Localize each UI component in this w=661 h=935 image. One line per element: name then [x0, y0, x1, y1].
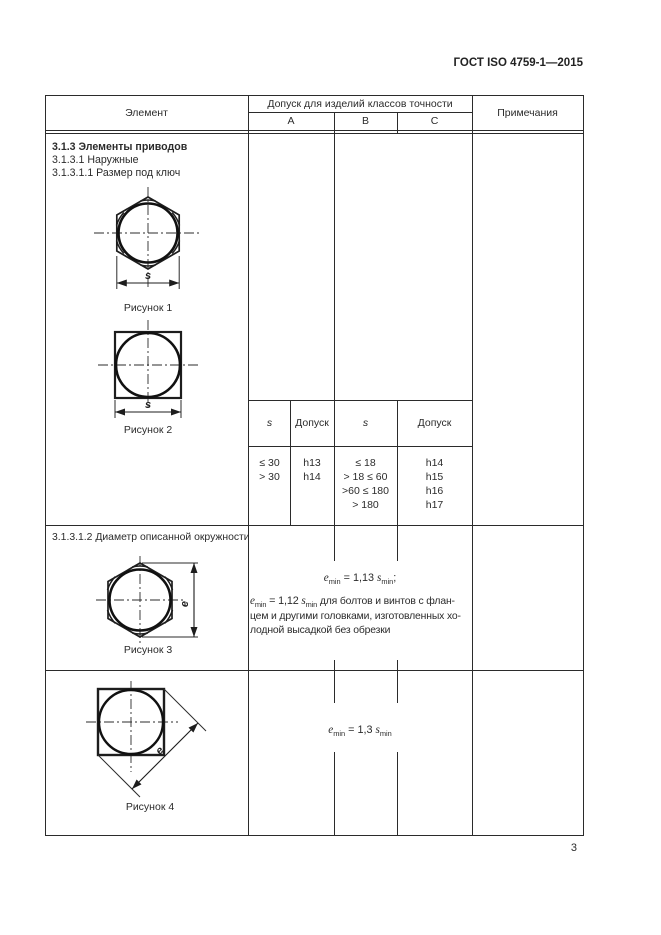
- dimension-label-s: s: [145, 270, 151, 282]
- table-border-right: [583, 95, 584, 836]
- bc-divider-row2-bottom: [397, 660, 398, 670]
- column-header-tolerance-span: Допуск для изделий классов точности: [248, 95, 472, 112]
- value-cell: > 18 ≤ 60: [334, 470, 397, 484]
- dimension-label-e: e: [179, 601, 191, 607]
- subtable-header-line: [248, 446, 472, 447]
- formula-e-13: emin = 1,3 smin: [248, 724, 472, 736]
- formula-tail: ;: [393, 572, 396, 584]
- subtable-values-tolerance-a: h13 h14: [290, 456, 334, 484]
- value-cell: h17: [397, 498, 472, 512]
- dimension-label-s: s: [145, 399, 151, 411]
- section-3-1-3: 3.1.3 Элементы приводов 3.1.3.1 Наружные…: [52, 141, 187, 181]
- column-header-class-a: A: [248, 112, 334, 130]
- figure-4-square-diagonal: e: [82, 680, 234, 802]
- subtable-header-s-bc: s: [334, 400, 397, 446]
- subtable-header-tolerance-bc: Допуск: [397, 400, 472, 446]
- section-heading: 3.1.3 Элементы приводов: [52, 141, 187, 154]
- formula-operator: = 1,13: [341, 572, 377, 584]
- flange-note: emin = 1,12 smin для болтов и винтов с ф…: [250, 594, 472, 639]
- value-cell: ≤ 30: [249, 456, 290, 470]
- bc-divider-row2-top: [397, 525, 398, 561]
- formula-subscript: min: [380, 729, 392, 738]
- figure-1-caption: Рисунок 1: [86, 302, 210, 314]
- value-cell: h15: [397, 470, 472, 484]
- table-border-bottom: [45, 835, 584, 836]
- extension-line-bottom-left: [98, 755, 140, 797]
- figure-1-hex-across-flats: s: [86, 186, 210, 302]
- column-header-class-c: C: [397, 112, 472, 130]
- value-cell: > 30: [249, 470, 290, 484]
- ab-divider-row2-top: [334, 525, 335, 561]
- formula-e-113: emin = 1,13 smin;: [248, 572, 472, 584]
- value-cell: >60 ≤ 180: [334, 484, 397, 498]
- note-text-1: для болтов и винтов с флан-: [317, 596, 455, 607]
- ab-divider-row3-bottom: [334, 752, 335, 835]
- bc-divider-row3-top: [397, 670, 398, 703]
- column-header-element: Элемент: [45, 95, 248, 130]
- figure-2-square-across-flats: s: [86, 320, 210, 420]
- formula-subscript: min: [329, 577, 341, 586]
- figure-2-caption: Рисунок 2: [86, 424, 210, 436]
- section-3-1-3-1-2-heading: 3.1.3.1.2 Диаметр описанной окружности: [52, 532, 250, 543]
- formula-operator: = 1,12: [266, 595, 301, 607]
- subtable-values-s-a: ≤ 30 > 30: [249, 456, 290, 484]
- ab-divider-row3-top: [334, 670, 335, 703]
- notes-column-divider: [472, 95, 473, 835]
- value-cell: > 180: [334, 498, 397, 512]
- header-bottom-line-2: [45, 133, 584, 134]
- column-header-class-b: B: [334, 112, 397, 130]
- note-line-3: лодной высадкой без обрезки: [250, 624, 472, 639]
- row2-bottom-line: [45, 670, 584, 671]
- figure-3-caption: Рисунок 3: [88, 644, 208, 656]
- table-border-left: [45, 95, 46, 836]
- value-cell: h14: [290, 470, 334, 484]
- subtable-header-tolerance-a: Допуск: [290, 400, 334, 446]
- formula-operator: = 1,3: [345, 724, 375, 736]
- bc-divider-row3-bottom: [397, 752, 398, 835]
- formula-subscript: min: [333, 729, 345, 738]
- value-cell: h13: [290, 456, 334, 470]
- figure-4-caption: Рисунок 4: [85, 801, 215, 813]
- document-page: ГОСТ ISO 4759-1—2015 3 Элемент Допуск дл…: [0, 0, 661, 935]
- note-line-2: цем и другими головками, изготовленных х…: [250, 610, 472, 625]
- formula-subscript: min: [306, 600, 317, 609]
- column-header-notes: Примечания: [472, 95, 583, 130]
- row1-bottom-line: [45, 525, 584, 526]
- formula-subscript: min: [381, 577, 393, 586]
- figure-3-hex-circumscribed-diameter: e: [94, 556, 210, 646]
- value-cell: h16: [397, 484, 472, 498]
- extension-line-top-right: [164, 689, 206, 731]
- header-bottom-line-1: [45, 130, 584, 131]
- value-cell: ≤ 18: [334, 456, 397, 470]
- ab-divider-row2-bottom: [334, 660, 335, 670]
- formula-subscript: min: [255, 600, 266, 609]
- subtable-header-s-a: s: [249, 400, 290, 446]
- section-subheading-1: 3.1.3.1 Наружные: [52, 154, 187, 167]
- page-number: 3: [545, 842, 577, 854]
- note-line-1: emin = 1,12 smin для болтов и винтов с ф…: [250, 594, 472, 610]
- subtable-values-tolerance-bc: h14 h15 h16 h17: [397, 456, 472, 512]
- document-header: ГОСТ ISO 4759-1—2015: [380, 57, 583, 69]
- value-cell: h14: [397, 456, 472, 470]
- subtable-values-s-bc: ≤ 18 > 18 ≤ 60 >60 ≤ 180 > 180: [334, 456, 397, 512]
- section-subheading-2: 3.1.3.1.1 Размер под ключ: [52, 167, 187, 180]
